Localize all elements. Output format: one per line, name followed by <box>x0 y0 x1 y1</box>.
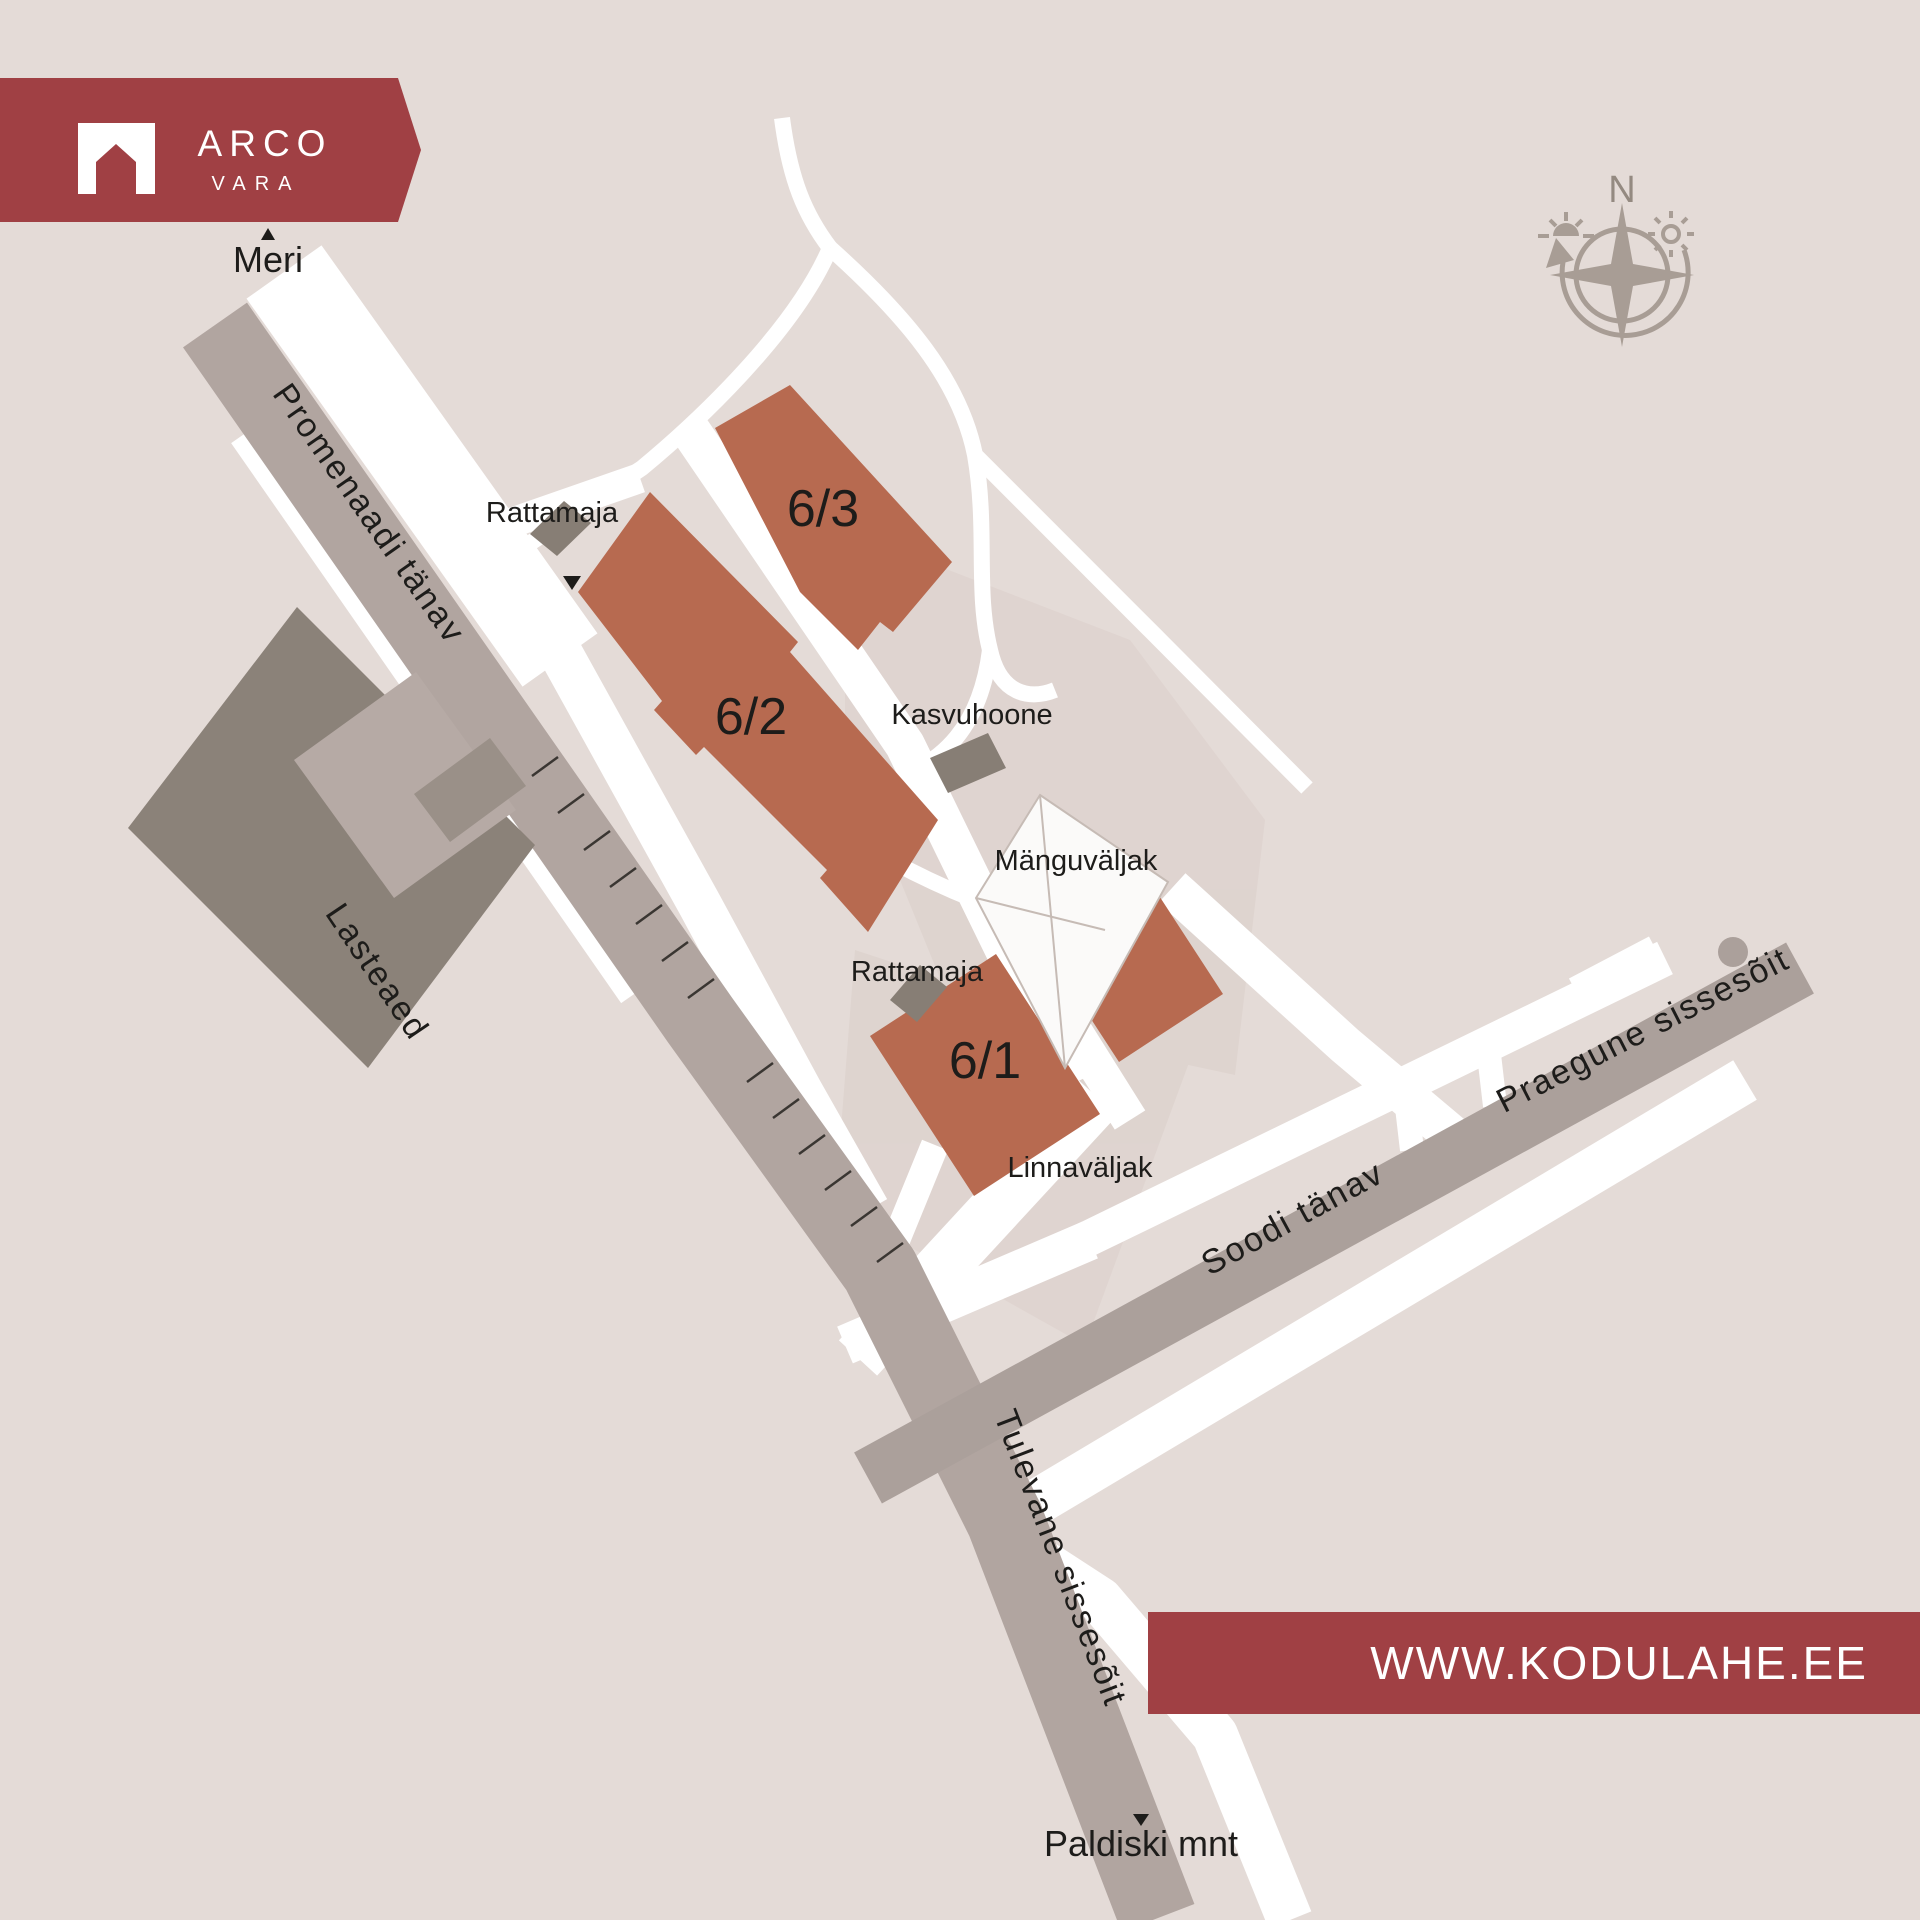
kasvuhoone-label: Kasvuhoone <box>891 699 1052 731</box>
logo-banner: ARCO VARA <box>0 78 421 222</box>
linnavaljak-label: Linnaväljak <box>1007 1152 1153 1184</box>
logo-brand-text: ARCO <box>198 123 333 164</box>
logo-sub-text: VARA <box>212 173 301 195</box>
building-6-3-label: 6/3 <box>787 480 859 538</box>
rattamaja-north-label: Rattamaja <box>486 497 619 529</box>
building-6-2-label: 6/2 <box>715 688 787 746</box>
url-banner[interactable]: WWW.KODULAHE.EE <box>1148 1612 1920 1714</box>
manguvaljak-label: Mänguväljak <box>995 845 1158 877</box>
site-map: Meri Paldiski mnt Promenaadi tänav Tulev… <box>0 0 1920 1920</box>
rattamaja-south-label: Rattamaja <box>851 956 984 988</box>
building-6-1-label: 6/1 <box>949 1032 1021 1090</box>
house-arch-icon <box>78 123 155 194</box>
paldiski-label: Paldiski mnt <box>1044 1823 1238 1864</box>
sidewalk-stub-1 <box>1405 1090 1412 1150</box>
sidewalk-stub-2 <box>1488 1046 1495 1106</box>
website-url-link[interactable]: WWW.KODULAHE.EE <box>1370 1637 1868 1689</box>
sea-label: Meri <box>233 239 303 280</box>
